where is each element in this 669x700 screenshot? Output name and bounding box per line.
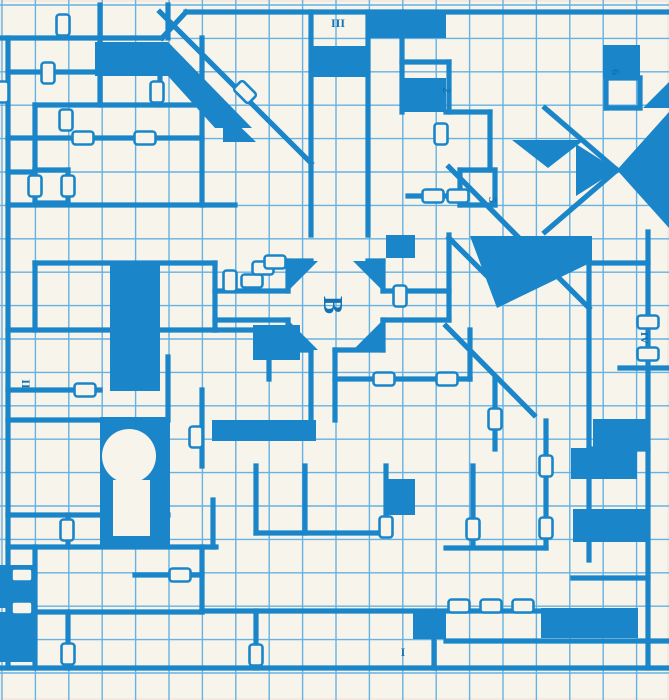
solid-fill — [643, 82, 669, 108]
carved-corridor — [113, 480, 150, 536]
area-label: 5 — [486, 197, 500, 203]
circular-room — [102, 429, 156, 483]
area-label: B — [318, 296, 348, 314]
solid-fill — [353, 320, 383, 350]
solid-fill — [370, 12, 446, 38]
door-symbol — [467, 519, 480, 540]
door-symbol — [233, 80, 257, 104]
door-symbol — [435, 124, 448, 145]
door-symbol — [540, 456, 553, 477]
solid-fill — [0, 612, 35, 662]
solid-fill — [617, 112, 669, 228]
door-symbol — [60, 110, 73, 131]
door-layer — [0, 15, 659, 666]
area-label: III — [331, 16, 345, 30]
door-symbol — [374, 373, 395, 386]
solid-fill — [386, 235, 415, 258]
door-symbol — [448, 190, 469, 203]
door-symbol — [61, 520, 74, 541]
area-label: 6 — [609, 69, 623, 75]
door-symbol — [12, 569, 33, 582]
solid-fill — [212, 420, 316, 441]
area-label: 2 — [440, 87, 454, 93]
door-symbol — [170, 569, 191, 582]
door-symbol — [449, 600, 470, 613]
door-symbol — [394, 286, 407, 307]
door-symbol — [423, 190, 444, 203]
solid-fill — [541, 608, 638, 638]
solid-fill — [313, 46, 366, 77]
door-symbol — [380, 517, 393, 538]
door-symbol — [638, 316, 659, 329]
door-symbol — [190, 427, 203, 448]
door-symbol — [62, 644, 75, 665]
solid-fill — [353, 261, 383, 291]
door-symbol — [242, 275, 263, 288]
area-label: I — [401, 645, 406, 659]
door-symbol — [12, 602, 33, 615]
door-symbol — [224, 271, 237, 292]
solid-fill — [573, 509, 648, 542]
door-symbol — [29, 176, 42, 197]
area-label: IV — [638, 332, 650, 344]
solid-fill — [384, 479, 415, 515]
door-symbol — [481, 600, 502, 613]
door-symbol — [42, 63, 55, 84]
door-symbol — [540, 518, 553, 539]
door-symbol — [75, 384, 96, 397]
solid-fill — [404, 78, 446, 112]
door-symbol — [513, 600, 534, 613]
door-symbol — [62, 176, 75, 197]
door-symbol — [57, 15, 70, 36]
solid-fill — [512, 140, 584, 168]
dungeon-map: Blue dungeon grid map, level plan with r… — [0, 0, 669, 700]
door-symbol — [0, 82, 9, 103]
door-symbol — [151, 82, 164, 103]
room-fill-layer — [0, 12, 669, 662]
door-symbol — [489, 409, 502, 430]
solid-fill — [571, 448, 637, 479]
dungeon-map-svg: Blue dungeon grid map, level plan with r… — [0, 0, 669, 700]
door-symbol — [638, 348, 659, 361]
solid-fill — [223, 110, 256, 142]
solid-fill — [110, 261, 160, 391]
door-symbol — [437, 373, 458, 386]
door-symbol — [73, 132, 94, 145]
area-label: II — [19, 379, 33, 389]
door-symbol — [135, 132, 156, 145]
door-symbol — [250, 645, 263, 666]
door-symbol — [265, 256, 286, 269]
solid-fill — [593, 419, 648, 449]
solid-fill — [95, 42, 252, 128]
